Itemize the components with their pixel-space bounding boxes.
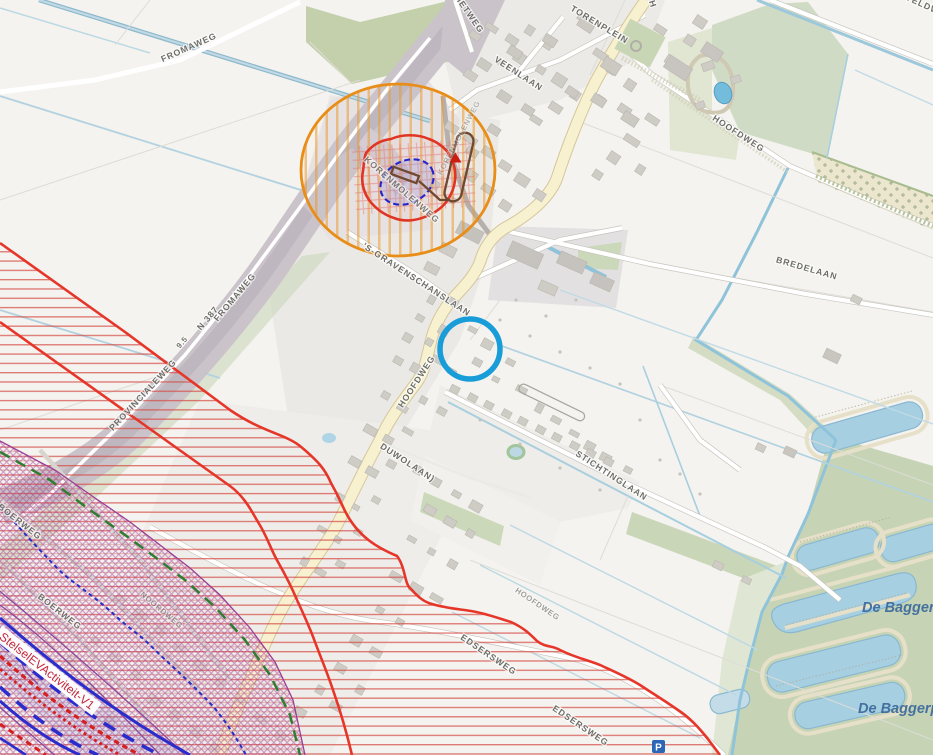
svg-text:P: P	[655, 743, 662, 754]
svg-text:De Baggerputten: De Baggerputten	[862, 600, 933, 616]
svg-text:De Baggerputten: De Baggerputten	[858, 701, 933, 717]
